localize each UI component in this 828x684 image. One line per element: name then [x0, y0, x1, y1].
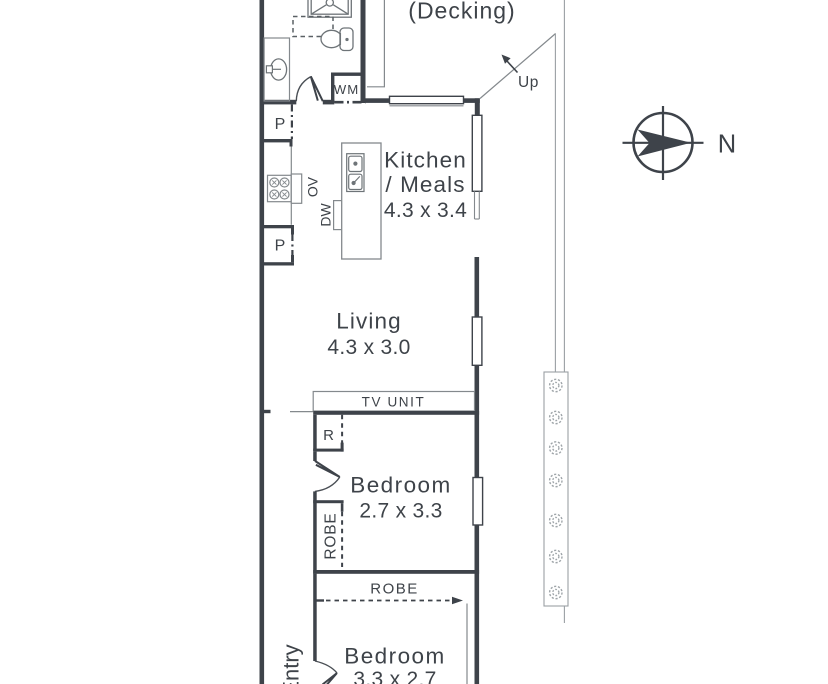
- svg-text:DW: DW: [318, 203, 334, 227]
- svg-text:TV UNIT: TV UNIT: [362, 395, 426, 410]
- svg-text:Up: Up: [518, 74, 539, 91]
- svg-text:3.3 x 2.7: 3.3 x 2.7: [353, 668, 436, 684]
- svg-text:R: R: [323, 427, 334, 444]
- svg-text:Bedroom: Bedroom: [344, 644, 445, 669]
- svg-text:P: P: [275, 238, 286, 255]
- svg-text:4.3 x 3.0: 4.3 x 3.0: [327, 336, 410, 359]
- svg-text:N: N: [718, 131, 736, 159]
- svg-text:ROBE: ROBE: [370, 581, 419, 598]
- svg-text:Living: Living: [336, 309, 401, 334]
- svg-text:ROBE: ROBE: [323, 512, 340, 559]
- svg-text:Kitchen: Kitchen: [384, 148, 467, 173]
- svg-text:Entry: Entry: [278, 644, 303, 684]
- svg-text:P: P: [275, 116, 286, 133]
- svg-text:(Decking): (Decking): [408, 0, 515, 24]
- svg-text:/ Meals: / Meals: [385, 172, 465, 197]
- svg-text:OV: OV: [305, 176, 321, 197]
- svg-text:Bedroom: Bedroom: [350, 473, 451, 498]
- svg-text:4.3 x 3.4: 4.3 x 3.4: [384, 199, 467, 222]
- svg-text:2.7 x 3.3: 2.7 x 3.3: [359, 500, 442, 523]
- svg-text:WM: WM: [334, 82, 359, 97]
